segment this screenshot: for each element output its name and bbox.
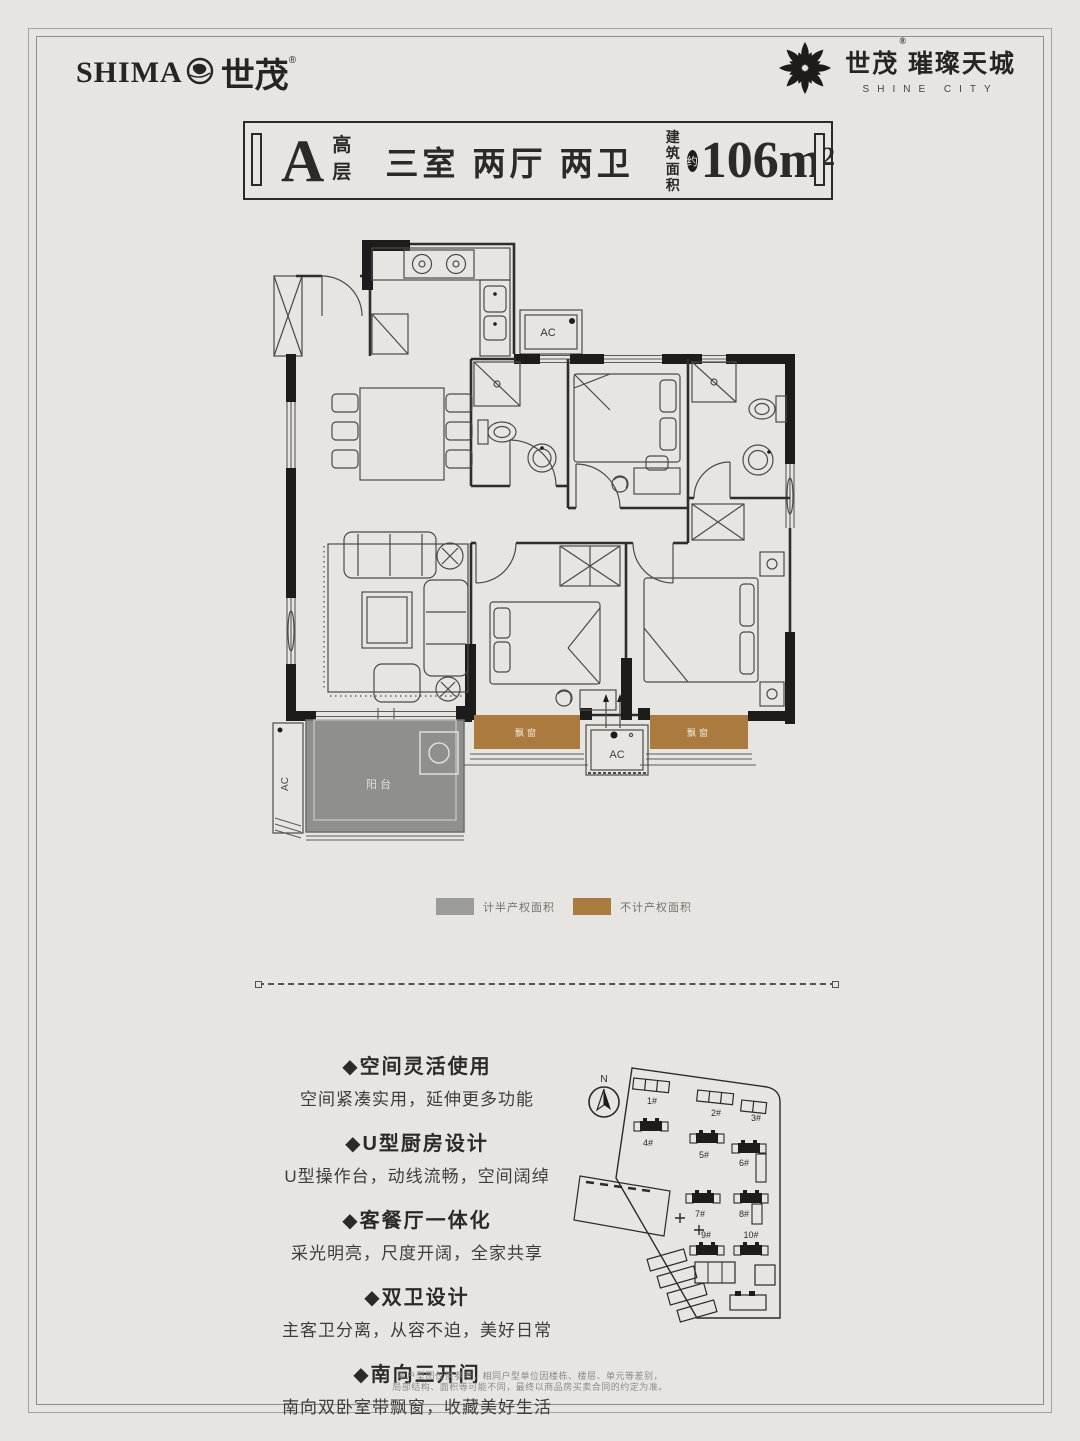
site-map: N xyxy=(572,1058,852,1373)
building-9: 9# xyxy=(690,1230,724,1255)
feature-desc: 采光明亮，尺度开阔，全家共享 xyxy=(217,1239,617,1264)
building-3: 3# xyxy=(741,1100,767,1123)
shimao-reg-mark: ® xyxy=(289,55,296,66)
unit-grade: 高层 xyxy=(332,130,353,184)
ac-top-label: AC xyxy=(540,327,555,339)
legend-item-excluded-area: 不计产权面积 xyxy=(573,898,692,915)
building-8: 8# xyxy=(734,1190,768,1224)
feature-title: ◆U型厨房设计 xyxy=(217,1127,617,1156)
dashed-divider xyxy=(258,983,836,985)
floorplan: AC xyxy=(258,228,828,851)
right-window xyxy=(786,464,794,528)
feature-desc: 主客卫分离，从容不迫，美好日常 xyxy=(217,1316,617,1341)
plan-legend: 计半产权面积 不计产权面积 xyxy=(436,898,692,915)
shimao-logo: SHIMA 世茂 ® xyxy=(76,48,296,97)
svg-text:4#: 4# xyxy=(643,1138,653,1148)
building-7: 7# xyxy=(686,1190,720,1219)
building-10: 10# xyxy=(734,1230,768,1255)
building-6: 6# xyxy=(732,1140,766,1182)
building-2: 2# xyxy=(697,1090,734,1118)
globe-icon xyxy=(185,55,215,90)
feature-desc: 空间紧凑实用，延伸更多功能 xyxy=(217,1085,617,1110)
feature-title: ◆空间灵活使用 xyxy=(217,1050,617,1079)
shimao-latin-text: SHIMA xyxy=(76,56,183,90)
svg-text:3#: 3# xyxy=(751,1113,761,1123)
unit-rooms: 三室 两厅 两卫 xyxy=(385,137,633,185)
project-name-cn: 世茂®璀璨天城 xyxy=(845,51,1016,78)
area-label: 建筑 面积 xyxy=(666,129,681,193)
unit-title-bar: A 高层 三室 两厅 两卫 建筑 面积 约 106m2 xyxy=(243,121,833,200)
north-label: N xyxy=(600,1074,607,1085)
feature-title: ◆双卫设计 xyxy=(217,1281,617,1310)
balcony-area xyxy=(306,720,464,832)
svg-text:2#: 2# xyxy=(711,1108,721,1118)
legend-item-half-area: 计半产权面积 xyxy=(436,898,555,915)
building-4: 4# xyxy=(634,1118,668,1148)
disclaimer-line1: 本户型图仅供参考，相同户型单位因楼栋、楼层、单元等差别， xyxy=(330,1371,730,1382)
feature-item: ◆客餐厅一体化 采光明亮，尺度开阔，全家共享 xyxy=(217,1204,617,1264)
project-name-en: SHINE CITY xyxy=(845,84,1016,95)
svg-text:1#: 1# xyxy=(647,1096,657,1106)
svg-text:7#: 7# xyxy=(695,1209,705,1219)
unit-letter: A xyxy=(281,131,324,191)
svg-text:6#: 6# xyxy=(739,1158,749,1168)
balcony-ac-label: AC xyxy=(280,777,291,791)
building-5: 5# xyxy=(690,1130,724,1160)
flower-icon xyxy=(777,38,833,101)
svg-text:5#: 5# xyxy=(699,1150,709,1160)
scroll-end-left xyxy=(251,133,262,186)
disclaimer-line2: 局部结构、面积等可能不同，最终以商品房买卖合同的约定为准。 xyxy=(330,1382,730,1393)
balcony-label: 阳台 xyxy=(366,777,394,791)
shine-city-logo: 世茂®璀璨天城 SHINE CITY xyxy=(777,38,1016,101)
ac-mid-label: AC xyxy=(609,749,624,761)
approx-badge: 约 xyxy=(687,150,698,172)
feature-item: ◆U型厨房设计 U型操作台，动线流畅，空间阔绰 xyxy=(217,1127,617,1187)
feature-desc: 南向双卧室带飘窗，收藏美好生活 xyxy=(217,1393,617,1418)
flyer-page: SHIMA 世茂 ® xyxy=(0,0,1080,1441)
shimao-cjk-text: 世茂 xyxy=(221,48,289,97)
feature-item: ◆双卫设计 主客卫分离，从容不迫，美好日常 xyxy=(217,1281,617,1341)
building-1: 1# xyxy=(633,1078,670,1106)
bay-window-left-label: 飘窗 xyxy=(515,727,539,738)
svg-text:10#: 10# xyxy=(743,1230,758,1240)
legend-label: 计半产权面积 xyxy=(483,899,555,915)
feature-title: ◆客餐厅一体化 xyxy=(217,1204,617,1233)
svg-text:8#: 8# xyxy=(739,1209,749,1219)
legend-label: 不计产权面积 xyxy=(620,899,692,915)
legend-swatch-gray xyxy=(436,898,474,915)
disclaimer: 本户型图仅供参考，相同户型单位因楼栋、楼层、单元等差别， 局部结构、面积等可能不… xyxy=(330,1371,730,1393)
bay-window-right-label: 飘窗 xyxy=(687,727,711,738)
north-compass-icon: N xyxy=(589,1074,619,1117)
svg-text:9#: 9# xyxy=(701,1230,711,1240)
legend-swatch-brown xyxy=(573,898,611,915)
feature-desc: U型操作台，动线流畅，空间阔绰 xyxy=(217,1162,617,1187)
feature-item: ◆空间灵活使用 空间紧凑实用，延伸更多功能 xyxy=(217,1050,617,1110)
